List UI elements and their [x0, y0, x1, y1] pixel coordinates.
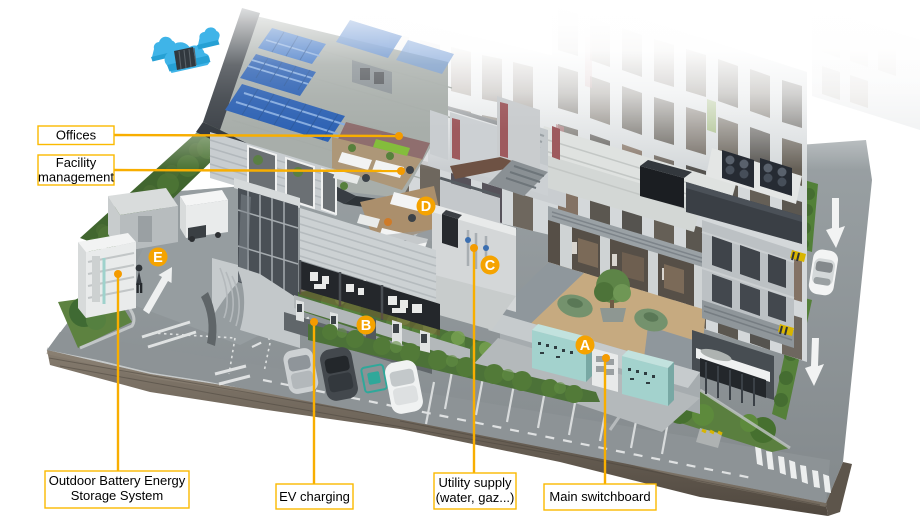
svg-text:E: E [153, 250, 163, 266]
svg-text:EV charging: EV charging [279, 489, 350, 504]
svg-text:Main switchboard: Main switchboard [549, 489, 650, 504]
svg-text:B: B [361, 318, 371, 334]
svg-text:Utility supply: Utility supply [439, 475, 512, 490]
svg-text:Facility: Facility [56, 155, 97, 170]
svg-text:Offices: Offices [56, 128, 97, 143]
svg-text:Storage System: Storage System [71, 488, 164, 503]
svg-text:C: C [485, 258, 496, 274]
svg-text:D: D [421, 199, 431, 215]
svg-text:(water, gaz...): (water, gaz...) [436, 490, 515, 505]
svg-text:management: management [38, 170, 114, 185]
svg-text:A: A [580, 338, 591, 354]
svg-text:Outdoor Battery Energy: Outdoor Battery Energy [49, 473, 186, 488]
